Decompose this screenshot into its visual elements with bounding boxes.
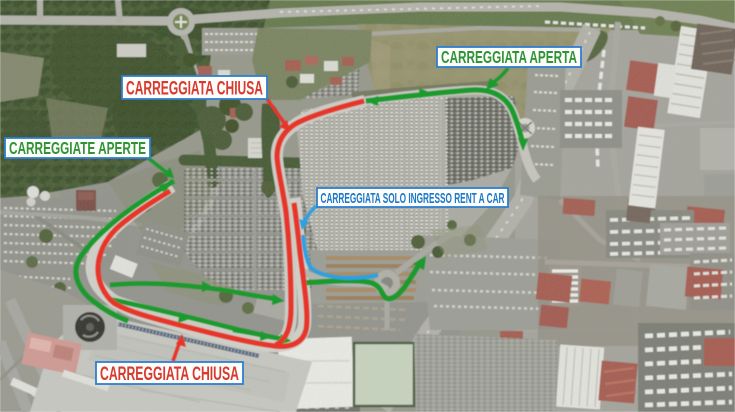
svg-text:CARREGGIATA CHIUSA: CARREGGIATA CHIUSA [126, 78, 263, 100]
svg-text:CARREGGIATE APERTE: CARREGGIATE APERTE [9, 138, 146, 158]
svg-text:CARREGGIATA APERTA: CARREGGIATA APERTA [441, 47, 577, 67]
svg-text:CARREGGIATA SOLO INGRESSO RENT: CARREGGIATA SOLO INGRESSO RENT A CAR [321, 190, 505, 207]
svg-text:CARREGGIATA CHIUSA: CARREGGIATA CHIUSA [100, 364, 239, 385]
